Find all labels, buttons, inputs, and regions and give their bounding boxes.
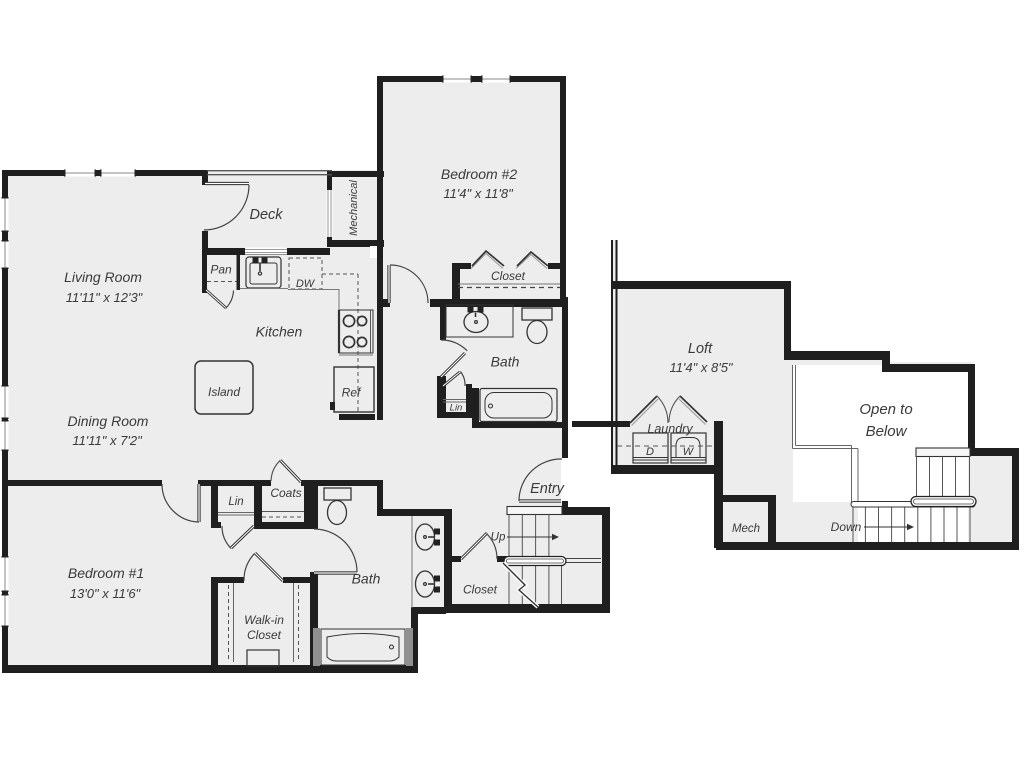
svg-text:Living Room: Living Room bbox=[64, 269, 142, 285]
svg-text:Mechanical: Mechanical bbox=[348, 180, 360, 236]
svg-text:DW: DW bbox=[296, 278, 316, 290]
svg-text:Closet: Closet bbox=[491, 269, 526, 283]
svg-text:Laundry: Laundry bbox=[647, 422, 693, 436]
svg-text:Closet: Closet bbox=[247, 628, 282, 642]
svg-text:Kitchen: Kitchen bbox=[256, 324, 303, 340]
svg-text:Open to: Open to bbox=[859, 401, 912, 418]
svg-text:Closet: Closet bbox=[463, 583, 498, 597]
svg-text:W: W bbox=[683, 446, 695, 458]
svg-text:Below: Below bbox=[866, 423, 908, 440]
svg-text:11'4" x 11'8": 11'4" x 11'8" bbox=[443, 186, 514, 201]
svg-text:Down: Down bbox=[831, 520, 862, 534]
svg-text:Coats: Coats bbox=[270, 486, 301, 500]
svg-text:Lin: Lin bbox=[228, 496, 243, 508]
svg-text:Bath: Bath bbox=[352, 571, 381, 587]
svg-text:Island: Island bbox=[208, 385, 240, 399]
svg-text:11'11" x 12'3": 11'11" x 12'3" bbox=[66, 290, 144, 305]
svg-text:Pan: Pan bbox=[210, 263, 232, 277]
svg-text:Bath: Bath bbox=[491, 354, 520, 370]
svg-text:11'4" x 8'5": 11'4" x 8'5" bbox=[669, 360, 733, 375]
svg-text:Walk-in: Walk-in bbox=[244, 613, 284, 627]
svg-text:Dining Room: Dining Room bbox=[68, 413, 149, 429]
svg-text:Bedroom #1: Bedroom #1 bbox=[68, 565, 144, 581]
svg-text:Deck: Deck bbox=[249, 207, 283, 223]
svg-text:Lin: Lin bbox=[450, 403, 463, 414]
svg-text:Bedroom #2: Bedroom #2 bbox=[441, 166, 517, 182]
svg-text:D: D bbox=[646, 446, 654, 458]
svg-text:Up: Up bbox=[491, 532, 506, 544]
svg-text:13'0" x 11'6": 13'0" x 11'6" bbox=[70, 586, 142, 601]
svg-text:Mech: Mech bbox=[732, 523, 760, 535]
svg-text:11'11" x 7'2": 11'11" x 7'2" bbox=[72, 433, 143, 448]
svg-text:Ref: Ref bbox=[342, 386, 362, 400]
svg-text:Entry: Entry bbox=[530, 481, 565, 497]
svg-text:Loft: Loft bbox=[688, 341, 713, 357]
